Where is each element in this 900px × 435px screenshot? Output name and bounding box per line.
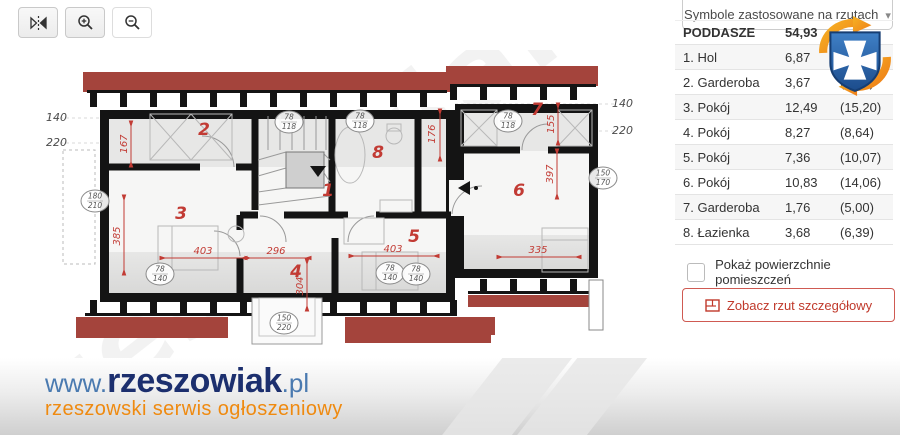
- svg-text:220: 220: [277, 323, 292, 332]
- svg-text:335: 335: [528, 245, 547, 256]
- svg-text:78: 78: [503, 112, 513, 121]
- svg-text:140: 140: [383, 273, 398, 282]
- room-area-gross: (8,64): [840, 125, 874, 140]
- shield-cross-icon: [830, 32, 879, 90]
- svg-text:118: 118: [282, 122, 297, 131]
- site-logo[interactable]: www.rzeszowiak.pl rzeszowski serwis ogło…: [45, 364, 343, 419]
- svg-text:180: 180: [88, 192, 103, 201]
- room-name: 4. Pokój: [683, 125, 785, 140]
- svg-text:5: 5: [408, 227, 420, 247]
- table-row: 4. Pokój 8,27 (8,64): [675, 120, 893, 145]
- svg-text:403: 403: [193, 246, 212, 257]
- flip-horizontal-button[interactable]: [18, 7, 58, 38]
- toolbar: [18, 7, 152, 38]
- brand-band: www.rzeszowiak.pl rzeszowski serwis ogło…: [0, 358, 900, 435]
- svg-text:140: 140: [153, 274, 168, 283]
- svg-text:170: 170: [596, 178, 611, 187]
- svg-text:304: 304: [295, 276, 306, 295]
- zoom-in-icon: [77, 14, 94, 31]
- room-area: 8,27: [785, 125, 840, 140]
- svg-text:155: 155: [546, 114, 557, 133]
- svg-text:385: 385: [112, 226, 123, 245]
- svg-text:220: 220: [612, 124, 633, 137]
- svg-text:403: 403: [383, 244, 402, 255]
- svg-text:140: 140: [46, 111, 67, 124]
- room-name: 3. Pokój: [683, 100, 785, 115]
- room-name: 5. Pokój: [683, 150, 785, 165]
- svg-text:2: 2: [198, 120, 210, 140]
- floor-name: PODDASZE: [683, 25, 785, 40]
- svg-text:140: 140: [409, 274, 424, 283]
- balcony-door: [589, 280, 603, 330]
- svg-text:78: 78: [411, 265, 421, 274]
- svg-text:3: 3: [175, 204, 187, 224]
- zoom-out-button[interactable]: [112, 7, 152, 38]
- logo-tagline: rzeszowski serwis ogłoszeniowy: [45, 399, 343, 419]
- table-row: 6. Pokój 10,83 (14,06): [675, 170, 893, 195]
- room-area-gross: (10,07): [840, 150, 881, 165]
- view-detailed-plan-button[interactable]: Zobacz rzut szczegółowy: [682, 288, 895, 322]
- table-row: 8. Łazienka 3,68 (6,39): [675, 220, 893, 245]
- svg-text:140: 140: [612, 97, 633, 110]
- svg-text:118: 118: [353, 121, 368, 130]
- svg-text:296: 296: [266, 246, 285, 257]
- svg-text:118: 118: [501, 121, 516, 130]
- svg-text:8: 8: [372, 143, 384, 163]
- logo-tld: .pl: [282, 370, 309, 396]
- table-row: 7. Garderoba 1,76 (5,00): [675, 195, 893, 220]
- room-area: 3,68: [785, 225, 840, 240]
- svg-text:78: 78: [155, 265, 165, 274]
- zoom-out-icon: [124, 14, 141, 31]
- room-name: 7. Garderoba: [683, 200, 785, 215]
- svg-text:78: 78: [385, 264, 395, 273]
- zoom-in-button[interactable]: [65, 7, 105, 38]
- svg-text:176: 176: [427, 124, 438, 143]
- svg-text:1: 1: [322, 181, 334, 201]
- room-area-gross: (15,20): [840, 100, 881, 115]
- svg-text:78: 78: [355, 112, 365, 121]
- room-name: 1. Hol: [683, 50, 785, 65]
- floor-plan: rzeszowiak: [40, 50, 660, 362]
- view-detailed-plan-label: Zobacz rzut szczegółowy: [727, 298, 872, 313]
- flip-horizontal-icon: [29, 15, 48, 31]
- show-areas-label: Pokaż powierzchnie pomieszczeń: [715, 257, 900, 287]
- svg-text:7: 7: [531, 100, 543, 120]
- room-area: 10,83: [785, 175, 840, 190]
- room-area: 1,76: [785, 200, 840, 215]
- floor-plan-svg: rzeszowiak: [40, 50, 660, 362]
- room-area-gross: (5,00): [840, 200, 874, 215]
- room-area-gross: (6,39): [840, 225, 874, 240]
- svg-text:150: 150: [596, 169, 611, 178]
- room-area: 12,49: [785, 100, 840, 115]
- table-row: 3. Pokój 12,49 (15,20): [675, 95, 893, 120]
- svg-text:6: 6: [513, 181, 525, 201]
- room-area: 7,36: [785, 150, 840, 165]
- floor-plan-icon: [705, 299, 720, 312]
- room-area-gross: (14,06): [840, 175, 881, 190]
- room-name: 6. Pokój: [683, 175, 785, 190]
- svg-text:150: 150: [277, 314, 292, 323]
- svg-text:167: 167: [119, 134, 130, 154]
- room-name: 8. Łazienka: [683, 225, 785, 240]
- rzeszowiak-crest-logo: [816, 16, 894, 96]
- svg-text:397: 397: [545, 164, 556, 184]
- logo-www: www.: [45, 370, 107, 396]
- table-row: 5. Pokój 7,36 (10,07): [675, 145, 893, 170]
- show-areas-checkbox-row[interactable]: Pokaż powierzchnie pomieszczeń: [687, 257, 900, 287]
- room-name: 2. Garderoba: [683, 75, 785, 90]
- svg-text:78: 78: [284, 113, 294, 122]
- logo-name: rzeszowiak: [107, 364, 282, 398]
- show-areas-checkbox[interactable]: [687, 263, 705, 282]
- svg-text:210: 210: [88, 201, 103, 210]
- svg-text:220: 220: [46, 136, 67, 149]
